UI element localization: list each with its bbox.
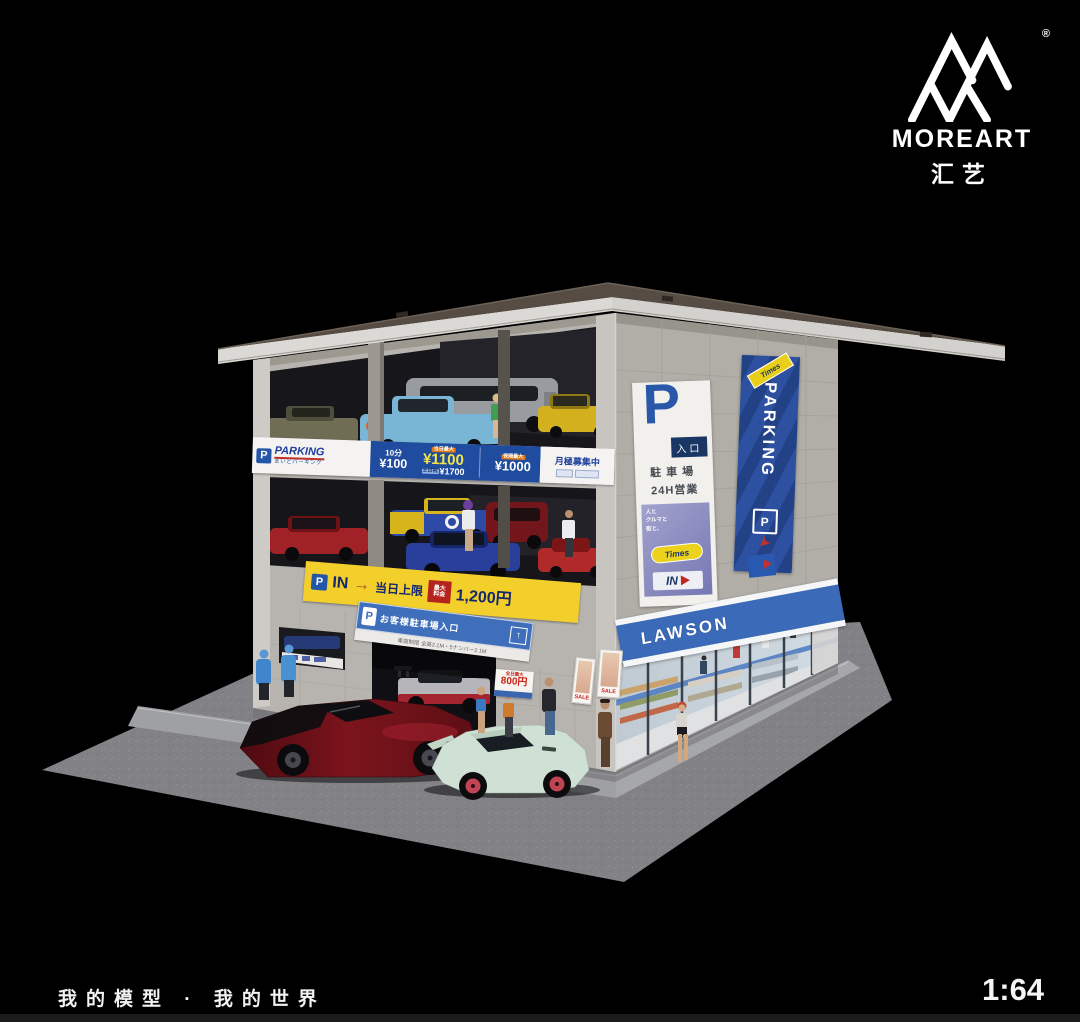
hours-label: 24H営業 xyxy=(637,480,712,499)
times-tagline-2: クルマと xyxy=(646,516,668,525)
night-price: ¥1000 xyxy=(495,459,532,473)
weekend-price: ¥1700 xyxy=(439,467,464,477)
sale-poster-image xyxy=(600,652,619,687)
max-fee-tag-bottom: 料金 xyxy=(433,591,445,598)
entry-p-icon: P xyxy=(311,574,328,591)
parking-brand-sub: まいどパーキング xyxy=(274,460,324,467)
daily-limit-label: 当日上限 xyxy=(374,578,423,599)
times-in-label: IN xyxy=(666,574,678,588)
red-mark-icon xyxy=(763,558,772,569)
price-poster-800: 全日最大 800円 xyxy=(494,669,534,699)
customer-p-icon: P xyxy=(361,607,377,627)
brand-logo: ® MOREART 汇艺 xyxy=(856,26,1068,182)
customer-entrance-label: お客様駐車場入口 xyxy=(379,611,460,634)
panel-p-glyph: P xyxy=(642,375,681,432)
registered-mark: ® xyxy=(1042,28,1050,40)
right-arrow-icon: → xyxy=(353,574,372,595)
times-in-badge: IN xyxy=(653,571,704,591)
scale-label: 1:64 xyxy=(982,972,1044,1008)
times-tagline: 人と クルマと 街と、 xyxy=(645,508,668,533)
blue-wall-poster xyxy=(747,553,776,578)
unit-price: ¥100 xyxy=(379,457,407,470)
gate-entrance-label: 入口 xyxy=(671,436,708,457)
max-price: ¥1100 xyxy=(423,451,464,467)
sale-poster-image xyxy=(575,660,592,693)
framed-p-icon: P xyxy=(752,509,778,535)
weekend-tag: 土日祝 xyxy=(421,468,438,474)
entry-in-label: IN xyxy=(332,574,349,593)
parked-suv-dark-red xyxy=(486,502,548,549)
vertical-parking-text: PARKING xyxy=(756,382,780,507)
daily-max-fee: 1,200円 xyxy=(455,581,513,609)
footer-caption: 我的模型 · 我的世界 xyxy=(58,984,326,1011)
brand-name-chinese: 汇艺 xyxy=(856,155,1068,189)
diorama-product-photo: P PARKING まいどパーキング 10分 ¥100 当日最大 ¥1100 土… xyxy=(0,0,1080,1022)
bottom-bar xyxy=(0,1014,1080,1022)
parking-lot-label: 駐車場 xyxy=(637,462,712,481)
building-front-face xyxy=(253,313,615,772)
parking-entrance-panel: P 入口 駐車場 24H営業 人と クルマと 街と、 Times IN xyxy=(632,380,718,607)
monthly-recruiting: 月極募集中 xyxy=(555,454,600,468)
times-poster: 人と クルマと 街と、 Times IN xyxy=(641,502,712,596)
times-tagline-3: 街と、 xyxy=(646,524,668,533)
sale-label: SALE xyxy=(572,694,591,702)
times-logo: Times xyxy=(651,543,702,563)
down-left-arrow-icon: ➤ xyxy=(754,533,773,553)
brand-name: MOREART xyxy=(856,125,1068,154)
in-arrow-icon xyxy=(681,575,690,585)
poster-800-price: 800円 xyxy=(500,676,527,688)
sale-poster-2: SALE xyxy=(597,649,623,698)
max-fee-tag: 最大 料金 xyxy=(427,580,452,604)
mountain-monogram-icon xyxy=(896,26,1028,122)
sale-label: SALE xyxy=(598,688,619,695)
vertical-parking-sign: Times PARKING P ➤ xyxy=(734,355,800,573)
up-arrow-icon: ↑ xyxy=(509,626,528,645)
parking-p-icon: P xyxy=(256,448,271,463)
